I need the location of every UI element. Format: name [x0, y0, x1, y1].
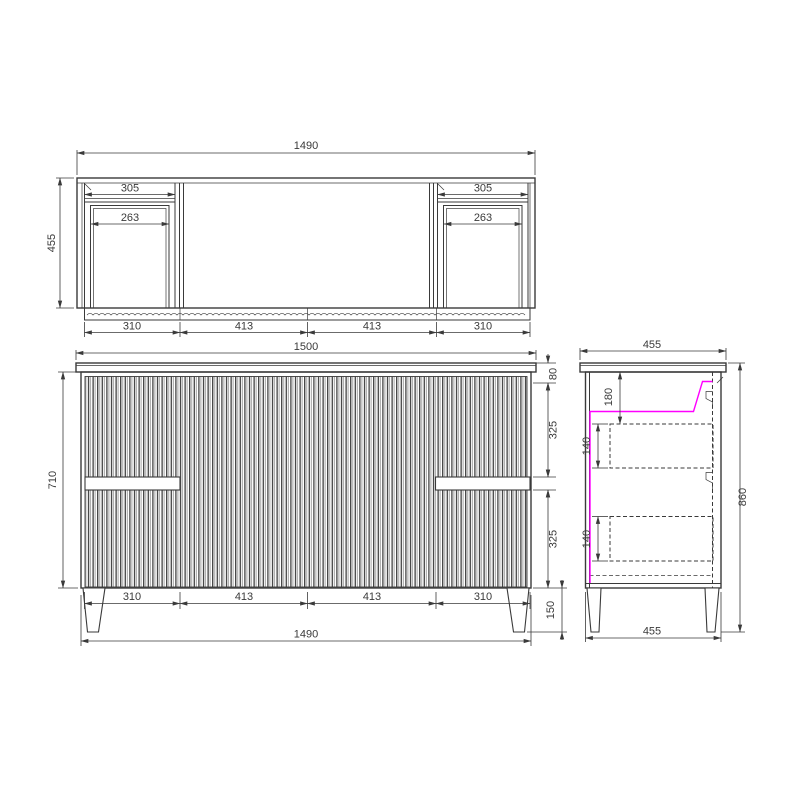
dim-plan-seg-1: 310	[123, 321, 141, 333]
dim-side-top-clearance: 180	[603, 388, 615, 406]
mid-handle-notch	[706, 473, 713, 491]
side-view: 455 180 140 140 860 455	[580, 339, 749, 642]
front-benchtop	[76, 363, 536, 372]
dim-plan-left-cutout-inner: 263	[121, 212, 139, 224]
dim-side-lower-drawer-depth: 140	[581, 530, 593, 548]
front-view: 1500 710 80 325 325 150	[47, 341, 567, 646]
front-right-leg	[507, 588, 529, 632]
dim-side-bottom-depth: 455	[643, 626, 661, 638]
vanity-cad-drawing: 1490 455 305 263 305 263	[0, 0, 800, 800]
dim-side-upper-drawer-depth: 140	[581, 437, 593, 455]
dim-front-seg-1: 310	[123, 591, 141, 603]
left-handle-groove	[85, 477, 180, 490]
dim-front-seg-4: 310	[474, 591, 492, 603]
lower-drawer-hidden-box	[610, 517, 713, 562]
upper-drawer-hidden-box	[610, 424, 713, 468]
side-front-leg	[705, 588, 719, 632]
side-benchtop	[580, 363, 726, 372]
top-handle-notch	[706, 392, 713, 410]
dim-plan-seg-3: 413	[363, 321, 381, 333]
dim-front-overall-width: 1490	[294, 629, 318, 641]
side-back-leg	[587, 588, 601, 632]
front-legs	[83, 588, 529, 632]
dim-plan-overall-width: 1490	[294, 140, 318, 152]
dim-plan-seg-2: 413	[235, 321, 253, 333]
dim-plan-left-cutout: 305	[121, 183, 139, 195]
dim-front-seg-3: 413	[363, 591, 381, 603]
dim-front-lower-drawer: 325	[548, 530, 560, 548]
dim-front-upper-drawer: 325	[548, 421, 560, 439]
front-left-leg	[83, 588, 105, 632]
side-dimensions: 455 180 140 140 860 455	[580, 339, 749, 642]
dim-plan-right-cutout-inner: 263	[474, 212, 492, 224]
fluted-edge-wave	[87, 313, 525, 315]
dim-plan-right-cutout: 305	[474, 183, 492, 195]
corner-tick	[85, 184, 91, 190]
dim-front-carcass-height: 710	[47, 471, 59, 489]
right-handle-groove	[436, 477, 531, 490]
top-view-plan: 1490 455 305 263 305 263	[46, 140, 535, 337]
dim-front-seg-2: 413	[235, 591, 253, 603]
plan-fluted-front-strip	[85, 308, 531, 320]
corner-tick	[717, 377, 723, 383]
basin-clearance-line	[590, 382, 713, 584]
dim-plan-seg-4: 310	[474, 321, 492, 333]
dim-plan-depth: 455	[46, 234, 58, 252]
front-carcass	[81, 372, 531, 588]
technical-drawing-page: 1490 455 305 263 305 263	[0, 0, 800, 800]
plan-carcass-outline	[77, 178, 535, 308]
dim-front-top-offset: 80	[548, 368, 560, 380]
plan-right-drawer-box	[438, 183, 529, 308]
dim-side-overall-height: 860	[737, 488, 749, 506]
plan-left-drawer-box	[85, 183, 176, 308]
dim-front-benchtop-width: 1500	[294, 341, 318, 353]
plan-center-dividers	[180, 183, 434, 308]
corner-tick	[438, 184, 444, 190]
dim-side-top-depth: 455	[643, 339, 661, 351]
dim-front-leg-height: 150	[545, 601, 557, 619]
